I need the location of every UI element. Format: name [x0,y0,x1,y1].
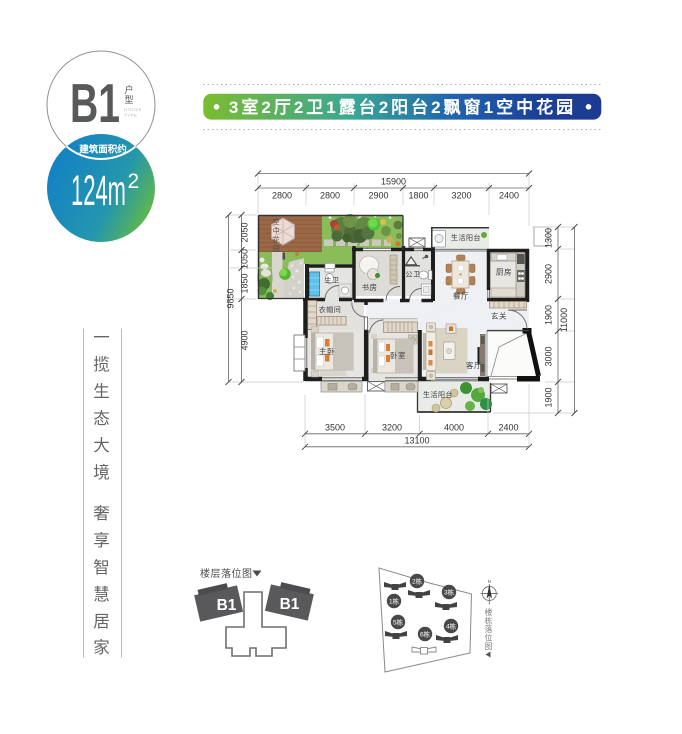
svg-text:4栋: 4栋 [446,622,457,631]
svg-text:花: 花 [273,235,281,244]
svg-text:慧: 慧 [93,585,110,604]
svg-text:栋: 栋 [485,616,493,626]
svg-text:建筑面积约: 建筑面积约 [78,144,127,156]
svg-text:公卫: 公卫 [406,271,421,279]
svg-text:5栋: 5栋 [393,618,404,627]
svg-text:1栋: 1栋 [389,597,400,606]
svg-text:15900: 15900 [381,177,406,187]
svg-text:客厅: 客厅 [466,360,482,370]
svg-text:9850: 9850 [226,288,236,308]
svg-text:2400: 2400 [498,423,518,433]
svg-text:卧室: 卧室 [390,350,406,360]
svg-text:家: 家 [93,638,110,657]
svg-text:3500: 3500 [325,423,345,433]
svg-text:124m: 124m [71,167,126,215]
svg-text:1850: 1850 [240,273,250,293]
svg-text:园: 园 [273,245,281,253]
svg-text:2400: 2400 [499,191,519,201]
svg-text:B1: B1 [280,596,300,613]
svg-text:玄关: 玄关 [491,311,507,321]
svg-text:1900: 1900 [544,305,554,325]
svg-text:1300: 1300 [544,228,554,248]
svg-text:11000: 11000 [559,308,569,332]
svg-text:大: 大 [93,436,110,455]
svg-text:图: 图 [485,642,493,651]
svg-text:衣帽间: 衣帽间 [319,305,342,314]
svg-text:楼: 楼 [485,607,493,617]
svg-text:3200: 3200 [382,423,402,433]
svg-text:13100: 13100 [404,436,429,446]
svg-text:户: 户 [124,84,133,95]
svg-text:厨房: 厨房 [496,267,512,277]
svg-text:2800: 2800 [272,191,292,201]
svg-text:3栋: 3栋 [444,588,455,597]
svg-text:B1: B1 [217,597,237,614]
svg-text:3200: 3200 [451,191,471,201]
svg-text:6栋: 6栋 [420,630,431,639]
svg-text:2: 2 [128,170,140,193]
svg-text:书房: 书房 [362,282,378,292]
svg-text:居: 居 [93,613,110,631]
svg-text:TYPE: TYPE [124,113,137,118]
svg-text:态: 态 [93,409,110,428]
svg-text:生活阳台: 生活阳台 [423,390,453,399]
svg-text:楼层落位图: 楼层落位图 [200,567,253,580]
svg-text:揽: 揽 [93,355,110,374]
svg-text:空: 空 [273,217,281,226]
svg-text:奢: 奢 [93,504,110,523]
svg-text:餐厅: 餐厅 [453,292,469,301]
svg-text:智: 智 [93,558,110,577]
svg-text:享: 享 [93,531,110,550]
svg-text:主卫: 主卫 [325,276,340,285]
svg-text:位: 位 [485,633,493,643]
svg-text:2栋: 2栋 [412,577,423,586]
svg-text:境: 境 [93,463,110,482]
svg-text:中: 中 [273,226,281,235]
svg-text:1050: 1050 [240,249,250,269]
svg-text:生: 生 [93,382,110,401]
svg-text:N: N [488,579,491,584]
svg-text:一: 一 [93,329,110,347]
svg-text:2900: 2900 [544,264,554,284]
svg-text:4000: 4000 [444,423,464,433]
svg-text:3室2厅2卫1露台2阳台2飘窗1空中花园: 3室2厅2卫1露台2阳台2飘窗1空中花园 [229,97,576,117]
svg-text:3000: 3000 [544,346,554,366]
svg-text:生活阳台: 生活阳台 [451,233,481,242]
svg-text:HOUSE: HOUSE [124,107,142,112]
svg-text:落: 落 [485,624,493,634]
svg-text:4900: 4900 [240,330,250,350]
svg-text:1800: 1800 [408,191,428,201]
svg-text:2050: 2050 [240,222,250,242]
svg-text:2800: 2800 [320,191,340,201]
svg-text:型: 型 [124,95,133,105]
svg-text:主卧: 主卧 [319,346,335,356]
svg-text:1900: 1900 [544,387,554,407]
svg-text:B1: B1 [70,72,120,134]
svg-text:2900: 2900 [368,191,388,201]
